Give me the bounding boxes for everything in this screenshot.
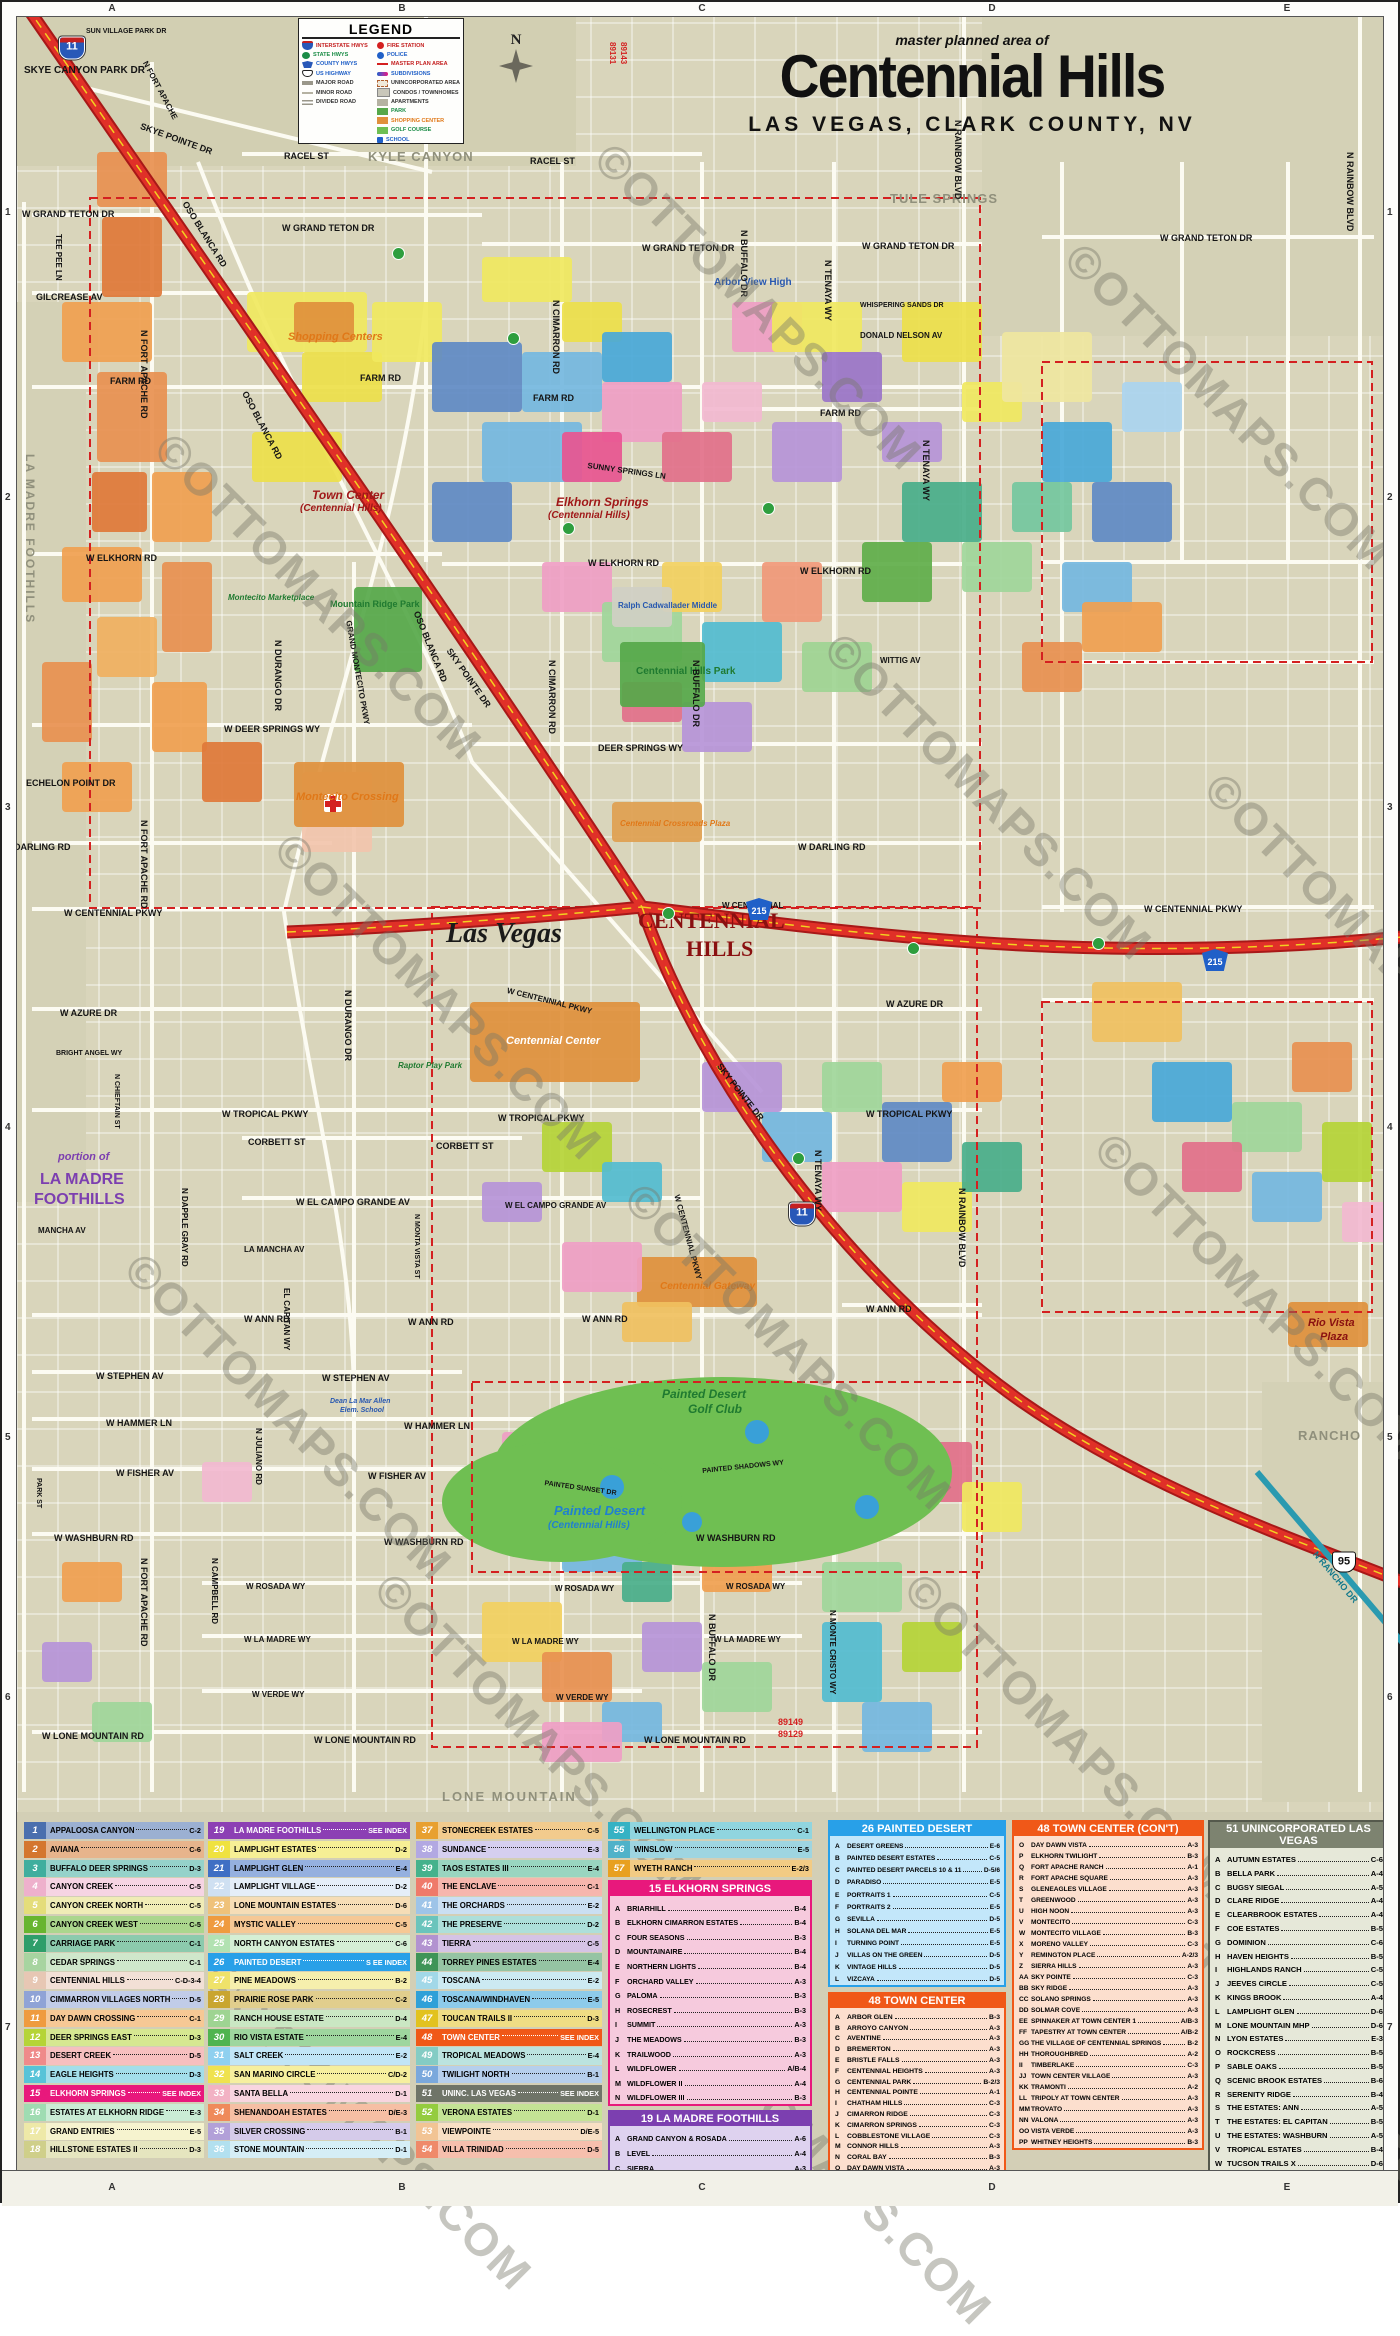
index-section-row-leader: [1283, 1999, 1368, 2000]
index-section-uninc: 51 UNINCORPORATED LAS VEGASAAUTUMN ESTAT…: [1208, 1820, 1389, 2172]
index-section-row: CBUGSY SIEGALA-5: [1215, 1878, 1383, 1892]
map-label: Raptor Play Park: [398, 1062, 462, 1070]
index-section-row-letter: H: [835, 1928, 847, 1935]
index-row-gridref: E-5: [190, 2127, 201, 2136]
index-section-row: ENORTHERN LIGHTSB-4: [615, 1956, 806, 1971]
index-section-row: WTUCSON TRAILS XD-6: [1215, 2154, 1383, 2168]
index-section-row-leader: [1289, 1985, 1369, 1986]
index-row-number: 5: [24, 1897, 46, 1914]
map-label: N DURANGO DR: [273, 640, 282, 711]
index-section-row-name: DESERT GREENS: [847, 1843, 903, 1850]
index-row-name: UNINC. LAS VEGAS: [442, 2089, 516, 2098]
index-section-row-name: GRAND CANYON & ROSADA: [627, 2134, 727, 2143]
index-row-name: WINSLOW: [634, 1845, 673, 1854]
grid-col-label: E: [1284, 2182, 1291, 2193]
index-row-name: DAY DAWN CROSSING: [50, 2014, 135, 2023]
map-label: W GRAND TETON DR: [282, 224, 374, 233]
index-row-gridref: S EE INDEX: [366, 1958, 407, 1967]
index-section-row-name: DOMINION: [1227, 1938, 1266, 1947]
index-section-row-leader: [1301, 2109, 1369, 2110]
index-section-row-name: WILDFLOWER II: [627, 2079, 683, 2088]
index-section-row-letter: C: [615, 1933, 627, 1942]
index-section-row-letter: K: [1215, 1993, 1227, 2002]
bar-minor-icon: [302, 92, 313, 94]
index-row-leader: [290, 2092, 393, 2093]
index-section-body: ABRIARHILLB-4BELKHORN CIMARRON ESTATESB-…: [610, 1896, 810, 2104]
index-section-row-name: WHITNEY HEIGHTS: [1031, 2139, 1092, 2146]
index-section-row-gridref: C-3: [1187, 1974, 1198, 1981]
grid-row-label: 2: [1387, 492, 1393, 503]
index-row-leader: [307, 2129, 393, 2130]
map-label: Las Vegas: [446, 920, 562, 948]
index-section-row-name: SCENIC BROOK ESTATES: [1227, 2076, 1322, 2085]
map-label: DONALD NELSON AV: [860, 332, 942, 340]
index-row-leader: [498, 1885, 585, 1886]
grid-row-label: 4: [5, 1122, 11, 1133]
index-section-row-name: GLENEAGLES VILLAGE: [1031, 1886, 1107, 1893]
index-row: 17GRAND ENTRIESE-5: [24, 2123, 204, 2140]
index-section-row-letter: N: [1215, 2034, 1227, 2043]
map-label: W CENTENNIAL PKWY: [1144, 905, 1242, 914]
index-section-row-name: THE VILLAGE OF CENTENNIAL SPRINGS: [1031, 2040, 1161, 2047]
legend-item: US HIGHWAY: [302, 69, 374, 78]
grid-ruler-right: 1234567: [1383, 16, 1398, 2170]
index-row-number: 34: [208, 2104, 230, 2121]
index-section-row-name: CHATHAM HILLS: [847, 2100, 902, 2107]
map-label: W GRAND TETON DR: [862, 242, 954, 251]
bar-major-icon: [302, 81, 313, 85]
index-section-row: UTHE ESTATES: WASHBURNA-5: [1215, 2126, 1383, 2140]
index-section-body: AARBOR GLENB-3BARROYO CANYONA-3CAVENTINE…: [830, 2008, 1004, 2174]
index-row-name: THE ORCHARDS: [442, 1901, 505, 1910]
legend-item-label: DIVIDED ROAD: [316, 99, 356, 105]
index-section-row-leader: [913, 2083, 981, 2084]
index-section-row-name: TROVATO: [1031, 2106, 1062, 2113]
index-row-name: HILLSTONE ESTATES II: [50, 2145, 138, 2154]
index-section-row: DMOUNTAINAIREB-4: [615, 1942, 806, 1957]
map-label: LA MADRE: [40, 1172, 124, 1188]
index-row-number: 24: [208, 1916, 230, 1933]
map-label: Ralph Cadwallader Middle: [618, 602, 717, 610]
map-title-block: master planned area of Centennial Hills …: [592, 32, 1352, 137]
index-row-number: 31: [208, 2047, 230, 2064]
index-row-number: 40: [416, 1878, 438, 1895]
exit-marker-icon: [662, 907, 675, 920]
index-section-row: HHTHOROUGHBREDA-2: [1019, 2047, 1198, 2058]
index-section-row-name: WILDFLOWER: [627, 2064, 677, 2073]
index-section-row-gridref: D-6: [1371, 2007, 1383, 2016]
index-section-row-gridref: E-5: [990, 1904, 1000, 1911]
index-section-row-letter: W: [1215, 2159, 1227, 2168]
index-section-row-leader: [1122, 2099, 1186, 2100]
map-label: Dean La Mar Allen: [330, 1398, 390, 1405]
index-section-row-letter: T: [1019, 1897, 1031, 1904]
box-park-icon: [377, 108, 388, 115]
index-section-row: FCOE ESTATESB-5: [1215, 1919, 1383, 1933]
index-section-row-gridref: B-3: [794, 2093, 806, 2102]
index-section-row-letter: HH: [1019, 2051, 1031, 2058]
index-section-row: AASKY POINTEC-3: [1019, 1970, 1198, 1981]
index-row-leader: [323, 1829, 366, 1830]
index-section-row-letter: MM: [1019, 2106, 1031, 2113]
index-section-row-letter: K: [835, 2122, 847, 2129]
index-section-row-leader: [1330, 2137, 1369, 2138]
index-section-row-letter: JJ: [1019, 2073, 1031, 2080]
index-row-gridref: D/E-3: [388, 2108, 407, 2117]
index-section-painted: 26 PAINTED DESERTADESERT GREENSE-6BPAINT…: [828, 1820, 1006, 1987]
index-section-row-gridref: A/B-2: [1181, 2029, 1198, 2036]
map-label: Town Center: [312, 489, 384, 501]
map-label: W ANN RD: [408, 1318, 454, 1327]
index-section-row: EPORTRAITS 1C-5: [835, 1886, 1000, 1898]
index-section-row-leader: [1079, 1967, 1186, 1968]
index-row: 13DESERT CREEKD-5: [24, 2047, 204, 2064]
index-section-row-name: BRIARHILL: [627, 1904, 666, 1913]
index-row-number: 57: [608, 1860, 630, 1877]
map-label: W DEER SPRINGS WY: [224, 725, 320, 734]
index-row-leader: [117, 1960, 187, 1961]
index-section-row-name: TOWN CENTER VILLAGE: [1031, 2073, 1110, 2080]
map-label: N RAINBOW BLVD: [1345, 152, 1354, 231]
index-section-row-name: ROCKCRESS: [1227, 2048, 1276, 2057]
index-section-row-name: REMINGTON PLACE: [1031, 1952, 1095, 1959]
index-section-row-letter: C: [1215, 1883, 1227, 1892]
index-section-row-leader: [963, 1871, 981, 1872]
index-section-row-letter: B: [615, 1918, 627, 1927]
index-section-row-leader: [1069, 1989, 1185, 1990]
legend-item-label: MAJOR ROAD: [316, 80, 354, 86]
index-section-row-name: VISTA VERDE: [1031, 2128, 1074, 2135]
index-row-name: GRAND ENTRIES: [50, 2127, 115, 2136]
index-row-name: CIMMARRON VILLAGES NORTH: [50, 1995, 170, 2004]
index-section-row: XMORENO VALLEYC-3: [1019, 1937, 1198, 1948]
index-section-row-gridref: A-3: [1187, 2095, 1198, 2102]
index-row: 19LA MADRE FOOTHILLSSEE INDEX: [208, 1822, 410, 1839]
bar-divided-icon: [302, 100, 313, 105]
map-page: master planned area of Centennial Hills …: [0, 0, 1400, 2203]
index-section-row: JJEEVES CIRCLEC-5: [1215, 1974, 1383, 1988]
index-row-number: 53: [416, 2123, 438, 2140]
index-row-leader: [506, 2148, 586, 2149]
index-section-row-name: FORT APACHE SQUARE: [1031, 1875, 1108, 1882]
map-label: W ANN RD: [582, 1315, 628, 1324]
grid-col-label: B: [398, 3, 405, 14]
index-row: 39TAOS ESTATES IIIE-4: [416, 1860, 602, 1877]
index-section-row-letter: V: [1215, 2145, 1227, 2154]
index-section-row: KVINTAGE HILLSD-5: [835, 1959, 1000, 1971]
index-row-leader: [116, 2073, 188, 2074]
index-row-name: CEDAR SPRINGS: [50, 1958, 115, 1967]
index-section-row-letter: DD: [1019, 2007, 1031, 2014]
index-section-row-name: CENTENNIAL HEIGHTS: [847, 2068, 923, 2075]
grid-row-label: 1: [1387, 207, 1393, 218]
index-section-body: ODAY DAWN VISTAA-3PELKHORN TWILIGHTB-3QF…: [1014, 1836, 1202, 2148]
index-section-row-name: ROSECREST: [627, 2006, 672, 2015]
index-row-number: 21: [208, 1860, 230, 1877]
index-row-number: 11: [24, 2010, 46, 2027]
map-label: W LONE MOUNTAIN RD: [314, 1736, 416, 1745]
index-section-row: QSCENIC BROOK ESTATESB-6: [1215, 2071, 1383, 2085]
index-section-row-leader: [925, 2072, 987, 2073]
index-row: 22LAMPLIGHT VILLAGED-2: [208, 1878, 410, 1895]
grid-row-label: 1: [5, 207, 11, 218]
index-row: 8CEDAR SPRINGSC-1: [24, 1953, 204, 1970]
index-section-row-letter: E: [835, 1892, 847, 1899]
index-section-row-name: TUCSON TRAILS X: [1227, 2159, 1296, 2168]
index-section-row-gridref: A-3: [1187, 1996, 1198, 2003]
index-row-leader: [285, 2054, 393, 2055]
index-section-row-gridref: A-5: [1371, 2103, 1383, 2112]
index-section-row-gridref: A-3: [989, 2025, 1000, 2032]
map-label: W GRAND TETON DR: [22, 210, 114, 219]
index-section-row-name: VINTAGE HILLS: [847, 1964, 897, 1971]
index-section-row-letter: N: [835, 2154, 847, 2161]
index-row-gridref: C-6: [395, 1939, 407, 1948]
index-row-gridref: E-5: [588, 1995, 599, 2004]
index-section-row-name: CIMARRON RIDGE: [847, 2111, 908, 2118]
index-section-row-gridref: B-6: [1371, 2076, 1383, 2085]
index-section-row-gridref: B-3: [794, 2035, 806, 2044]
legend-item: POLICE: [377, 50, 460, 59]
legend-item: FIRE STATION: [377, 41, 460, 50]
index-row-name: ELKHORN SPRINGS: [50, 2089, 126, 2098]
map-label: GILCREASE AV: [36, 293, 103, 302]
legend-item-label: UNINCORPORATED AREA: [391, 80, 460, 86]
index-section-row: ABRIARHILLB-4: [615, 1898, 806, 1913]
index-row-number: 23: [208, 1897, 230, 1914]
box-gray-icon: [377, 88, 390, 97]
index-section-row: BPAINTED DESERT ESTATESC-5: [835, 1850, 1000, 1862]
index-section-row-leader: [1082, 2011, 1185, 2012]
index-section-row-leader: [1071, 1912, 1185, 1913]
index-section-row-leader: [1312, 2027, 1369, 2028]
index-section-row-name: SPINNAKER AT TOWN CENTER 1: [1031, 2018, 1136, 2025]
index-row-number: 35: [208, 2123, 230, 2140]
index-section-row: JCIMARRON RIDGEC-3: [835, 2107, 1000, 2118]
index-section-row-gridref: A/B-4: [787, 2064, 806, 2073]
index-row-name: PAINTED DESERT: [234, 1958, 301, 1967]
map-label: N CIMARRON RD: [551, 300, 560, 374]
index-section-row-letter: B: [835, 1855, 847, 1862]
index-section-row: SGLENEAGLES VILLAGEA-3: [1019, 1882, 1198, 1893]
index-section-row-name: CLEARBROOK ESTATES: [1227, 1910, 1317, 1919]
index-row: 1APPALOOSA CANYONC-2: [24, 1822, 204, 1839]
index-section-body: AAUTUMN ESTATESC-6BBELLA PARKA-4CBUGSY S…: [1210, 1848, 1387, 2169]
index-section-row-letter: Q: [1019, 1864, 1031, 1871]
index-section-row: WMONTECITO VILLAGEB-3: [1019, 1926, 1198, 1937]
index-section-row-gridref: E-5: [990, 1879, 1000, 1886]
index-row-number: 17: [24, 2123, 46, 2140]
map-label: LA MANCHA AV: [244, 1246, 304, 1254]
index-row: 31SALT CREEKE-2: [208, 2047, 410, 2064]
index-section-row-name: CENTENNIAL PARK: [847, 2079, 911, 2086]
index-row-gridref: D-2: [587, 1920, 599, 1929]
grid-col-label: E: [1284, 3, 1291, 14]
legend-item: SHOPPING CENTER: [377, 116, 460, 125]
index-row: 47TOUCAN TRAILS IID-3: [416, 2010, 602, 2027]
index-section-row-leader: [1097, 1956, 1180, 1957]
index-row-leader: [514, 2016, 585, 2017]
index-row: 45TOSCANAE-2: [416, 1972, 602, 1989]
index-row-number: 33: [208, 2085, 230, 2102]
index-row-number: 52: [416, 2104, 438, 2121]
index-row: 35SILVER CROSSINGB-1: [208, 2123, 410, 2140]
index-section-row: LLAMPLIGHT GLEND-6: [1215, 2002, 1383, 2016]
index-section-row-leader: [932, 2137, 987, 2138]
map-label: Elkhorn Springs: [556, 496, 649, 508]
index-row-number: 30: [208, 2029, 230, 2046]
index-section-row-letter: L: [615, 2064, 627, 2073]
index-section-row-letter: F: [1215, 1924, 1227, 1933]
index-section-row-letter: CC: [1019, 1996, 1031, 2003]
index-section-row-name: TAPESTRY AT TOWN CENTER: [1031, 2029, 1126, 2036]
index-row-name: PINE MEADOWS: [234, 1976, 296, 1985]
index-section-row: TGREENWOODA-3: [1019, 1893, 1198, 1904]
index-section-row-gridref: A-3: [1187, 1908, 1198, 1915]
legend-item-label: INTERSTATE HWYS: [316, 43, 368, 49]
map-label: W ROSADA WY: [246, 1583, 305, 1591]
index-section-row-gridref: C-3: [1187, 1941, 1198, 1948]
index-row-number: 42: [416, 1916, 438, 1933]
index-row: 11DAY DAWN CROSSINGC-1: [24, 2010, 204, 2027]
index-section-row-letter: I: [615, 2020, 627, 2029]
index-section-row-gridref: B-5: [1371, 1924, 1383, 1933]
map-label: W FISHER AV: [116, 1469, 174, 1478]
index-section-row-letter: B: [615, 2149, 627, 2158]
index-section-row-gridref: A-5: [1371, 2131, 1383, 2140]
index-section-row-leader: [1064, 2110, 1185, 2111]
index-row-leader: [473, 1941, 585, 1942]
index-section-row-gridref: A/B-3: [1181, 2018, 1198, 2025]
index-row-number: 51: [416, 2085, 438, 2102]
map-label: TULE SPRINGS: [890, 192, 998, 205]
index-section-row-letter: GG: [1019, 2040, 1031, 2047]
map-label: KYLE CANYON: [368, 150, 474, 163]
index-row-leader: [675, 1847, 796, 1848]
index-section-row-leader: [1281, 1902, 1368, 1903]
index-section-row-name: CIMARRON SPRINGS: [847, 2122, 917, 2129]
index-section-row: FORCHARD VALLEYA-3: [615, 1971, 806, 1986]
index-row-leader: [298, 1923, 393, 1924]
index-section-row-leader: [687, 1939, 793, 1940]
index-section-row-gridref: A-3: [794, 2020, 806, 2029]
index-row-name: RIO VISTA ESTATE: [234, 2033, 304, 2042]
index-row: 18HILLSTONE ESTATES IID-3: [24, 2141, 204, 2158]
map-label: N BUFFALO DR: [707, 1614, 716, 1681]
index-section-row-gridref: B-4: [794, 1918, 806, 1927]
index-section-row-name: ARROYO CANYON: [847, 2025, 908, 2032]
index-row: 21LAMPLIGHT GLENE-4: [208, 1860, 410, 1877]
index-row-leader: [317, 2073, 386, 2074]
index-row-gridref: C-2: [395, 1995, 407, 2004]
index-row-leader: [502, 2035, 558, 2036]
index-section-row-name: PAINTED DESERT ESTATES: [847, 1855, 935, 1862]
index-row: 38SUNDANCEE-3: [416, 1841, 602, 1858]
index-section-row-letter: I: [835, 2100, 847, 2107]
grid-row-label: 6: [1387, 1692, 1393, 1703]
index-section-row-leader: [919, 2126, 987, 2127]
map-label: W HAMMER LN: [404, 1422, 470, 1431]
index-section-row-name: AUTUMN ESTATES: [1227, 1855, 1296, 1864]
index-row-gridref: E-3: [588, 1845, 599, 1854]
index-row-gridref: C-2: [189, 1826, 201, 1835]
index-section-row-name: CENTENNIAL POINTE: [847, 2089, 918, 2096]
index-row-name: TWILIGHT NORTH: [442, 2070, 510, 2079]
index-row-name: VERONA ESTATES: [442, 2108, 512, 2117]
index-row: 49TROPICAL MEADOWSE-4: [416, 2047, 602, 2064]
map-label: W ELKHORN RD: [800, 567, 871, 576]
index-section-row-name: BRISTLE FALLS: [847, 2057, 900, 2064]
index-section-elkhorn: 15 ELKHORN SPRINGSABRIARHILLB-4BELKHORN …: [608, 1880, 812, 2106]
index-column-2: 19LA MADRE FOOTHILLSSEE INDEX20LAMPLIGHT…: [208, 1822, 410, 2158]
legend-poi-column: FIRE STATIONPOLICEMASTER PLAN AREASUBDIV…: [377, 41, 460, 144]
map-label: PARK ST: [35, 1478, 42, 1508]
index-section-row-name: TURNING POINT: [847, 1940, 899, 1947]
legend-box: LEGEND INTERSTATE HWYSSTATE HWYSCOUNTY H…: [298, 18, 464, 144]
index-row-name: RANCH HOUSE ESTATE: [234, 2014, 324, 2023]
index-row-leader: [518, 2092, 558, 2093]
compass: N: [494, 32, 538, 83]
map-label: LA MADRE FOOTHILLS: [24, 454, 36, 624]
index-section-row-gridref: C-3: [1187, 1919, 1198, 1926]
index-section-row: NLYON ESTATESE-3: [1215, 2030, 1383, 2044]
index-section-row: UHIGH NOONA-3: [1019, 1904, 1198, 1915]
index-section-row-letter: E: [835, 2057, 847, 2064]
index-column-3: 37STONECREEK ESTATESC-538SUNDANCEE-339TA…: [416, 1822, 602, 2158]
index-section-row-letter: F: [835, 2068, 847, 2075]
index-section-row: BELKHORN CIMARRON ESTATESB-4: [615, 1913, 806, 1928]
index-section-row-letter: D: [835, 1879, 847, 1886]
index-section-row-letter: D: [835, 2046, 847, 2053]
index-section-row-gridref: A-3: [989, 2143, 1000, 2150]
index-section-row: KKINGS BROOKA-4: [1215, 1988, 1383, 2002]
map-label: W AZURE DR: [886, 1000, 943, 1009]
index-section-row-letter: L: [1215, 2007, 1227, 2016]
index-section-row-letter: O: [1019, 1842, 1031, 1849]
index-section-row: JTHE MEADOWSB-3: [615, 2029, 806, 2044]
index-row-number: 50: [416, 2066, 438, 2083]
index-section-row-letter: K: [615, 2050, 627, 2059]
index-row: 48TOWN CENTERSEE INDEX: [416, 2029, 602, 2046]
index-row-name: DESERT CREEK: [50, 2051, 111, 2060]
index-section-row: CCSOLANO SPRINGSA-3: [1019, 1992, 1198, 2003]
index-row-leader: [298, 1979, 393, 1980]
grid-row-label: 4: [1387, 1122, 1393, 1133]
index-section-row: CAVENTINEA-3: [835, 2032, 1000, 2043]
index-section-row: ISUMMITA-3: [615, 2015, 806, 2030]
index-section-row-name: THE ESTATES: WASHBURN: [1227, 2131, 1328, 2140]
index-row-gridref: C-5: [189, 1901, 201, 1910]
index-section-row-gridref: E-3: [1371, 2034, 1383, 2043]
index-row: 30RIO VISTA ESTATEE-4: [208, 2029, 410, 2046]
index-row-name: CANYON CREEK WEST: [50, 1920, 138, 1929]
index-row: 20LAMPLIGHT ESTATESD-2: [208, 1841, 410, 1858]
index-row-number: 19: [208, 1822, 230, 1839]
index-section-row-letter: I: [1215, 1965, 1227, 1974]
index-section-row-gridref: B-3: [1187, 1930, 1198, 1937]
index-row-name: STONECREEK ESTATES: [442, 1826, 533, 1835]
index-section-row-gridref: A-2/3: [1182, 1952, 1198, 1959]
index-section-row-letter: P: [1019, 1853, 1031, 1860]
index-section-row-gridref: B-3: [1187, 2139, 1198, 2146]
map-label: N BUFFALO DR: [691, 660, 700, 727]
exit-marker-icon: [392, 247, 405, 260]
map-label: W CENTENNIAL PKWY: [64, 909, 162, 918]
index-section-towncenter: 48 TOWN CENTERAARBOR GLENB-3BARROYO CANY…: [828, 1992, 1006, 2176]
index-section-row-gridref: A-4: [1371, 1993, 1383, 2002]
index-section-row-name: WILDFLOWER III: [627, 2093, 685, 2102]
map-label: 89149: [778, 1718, 803, 1727]
